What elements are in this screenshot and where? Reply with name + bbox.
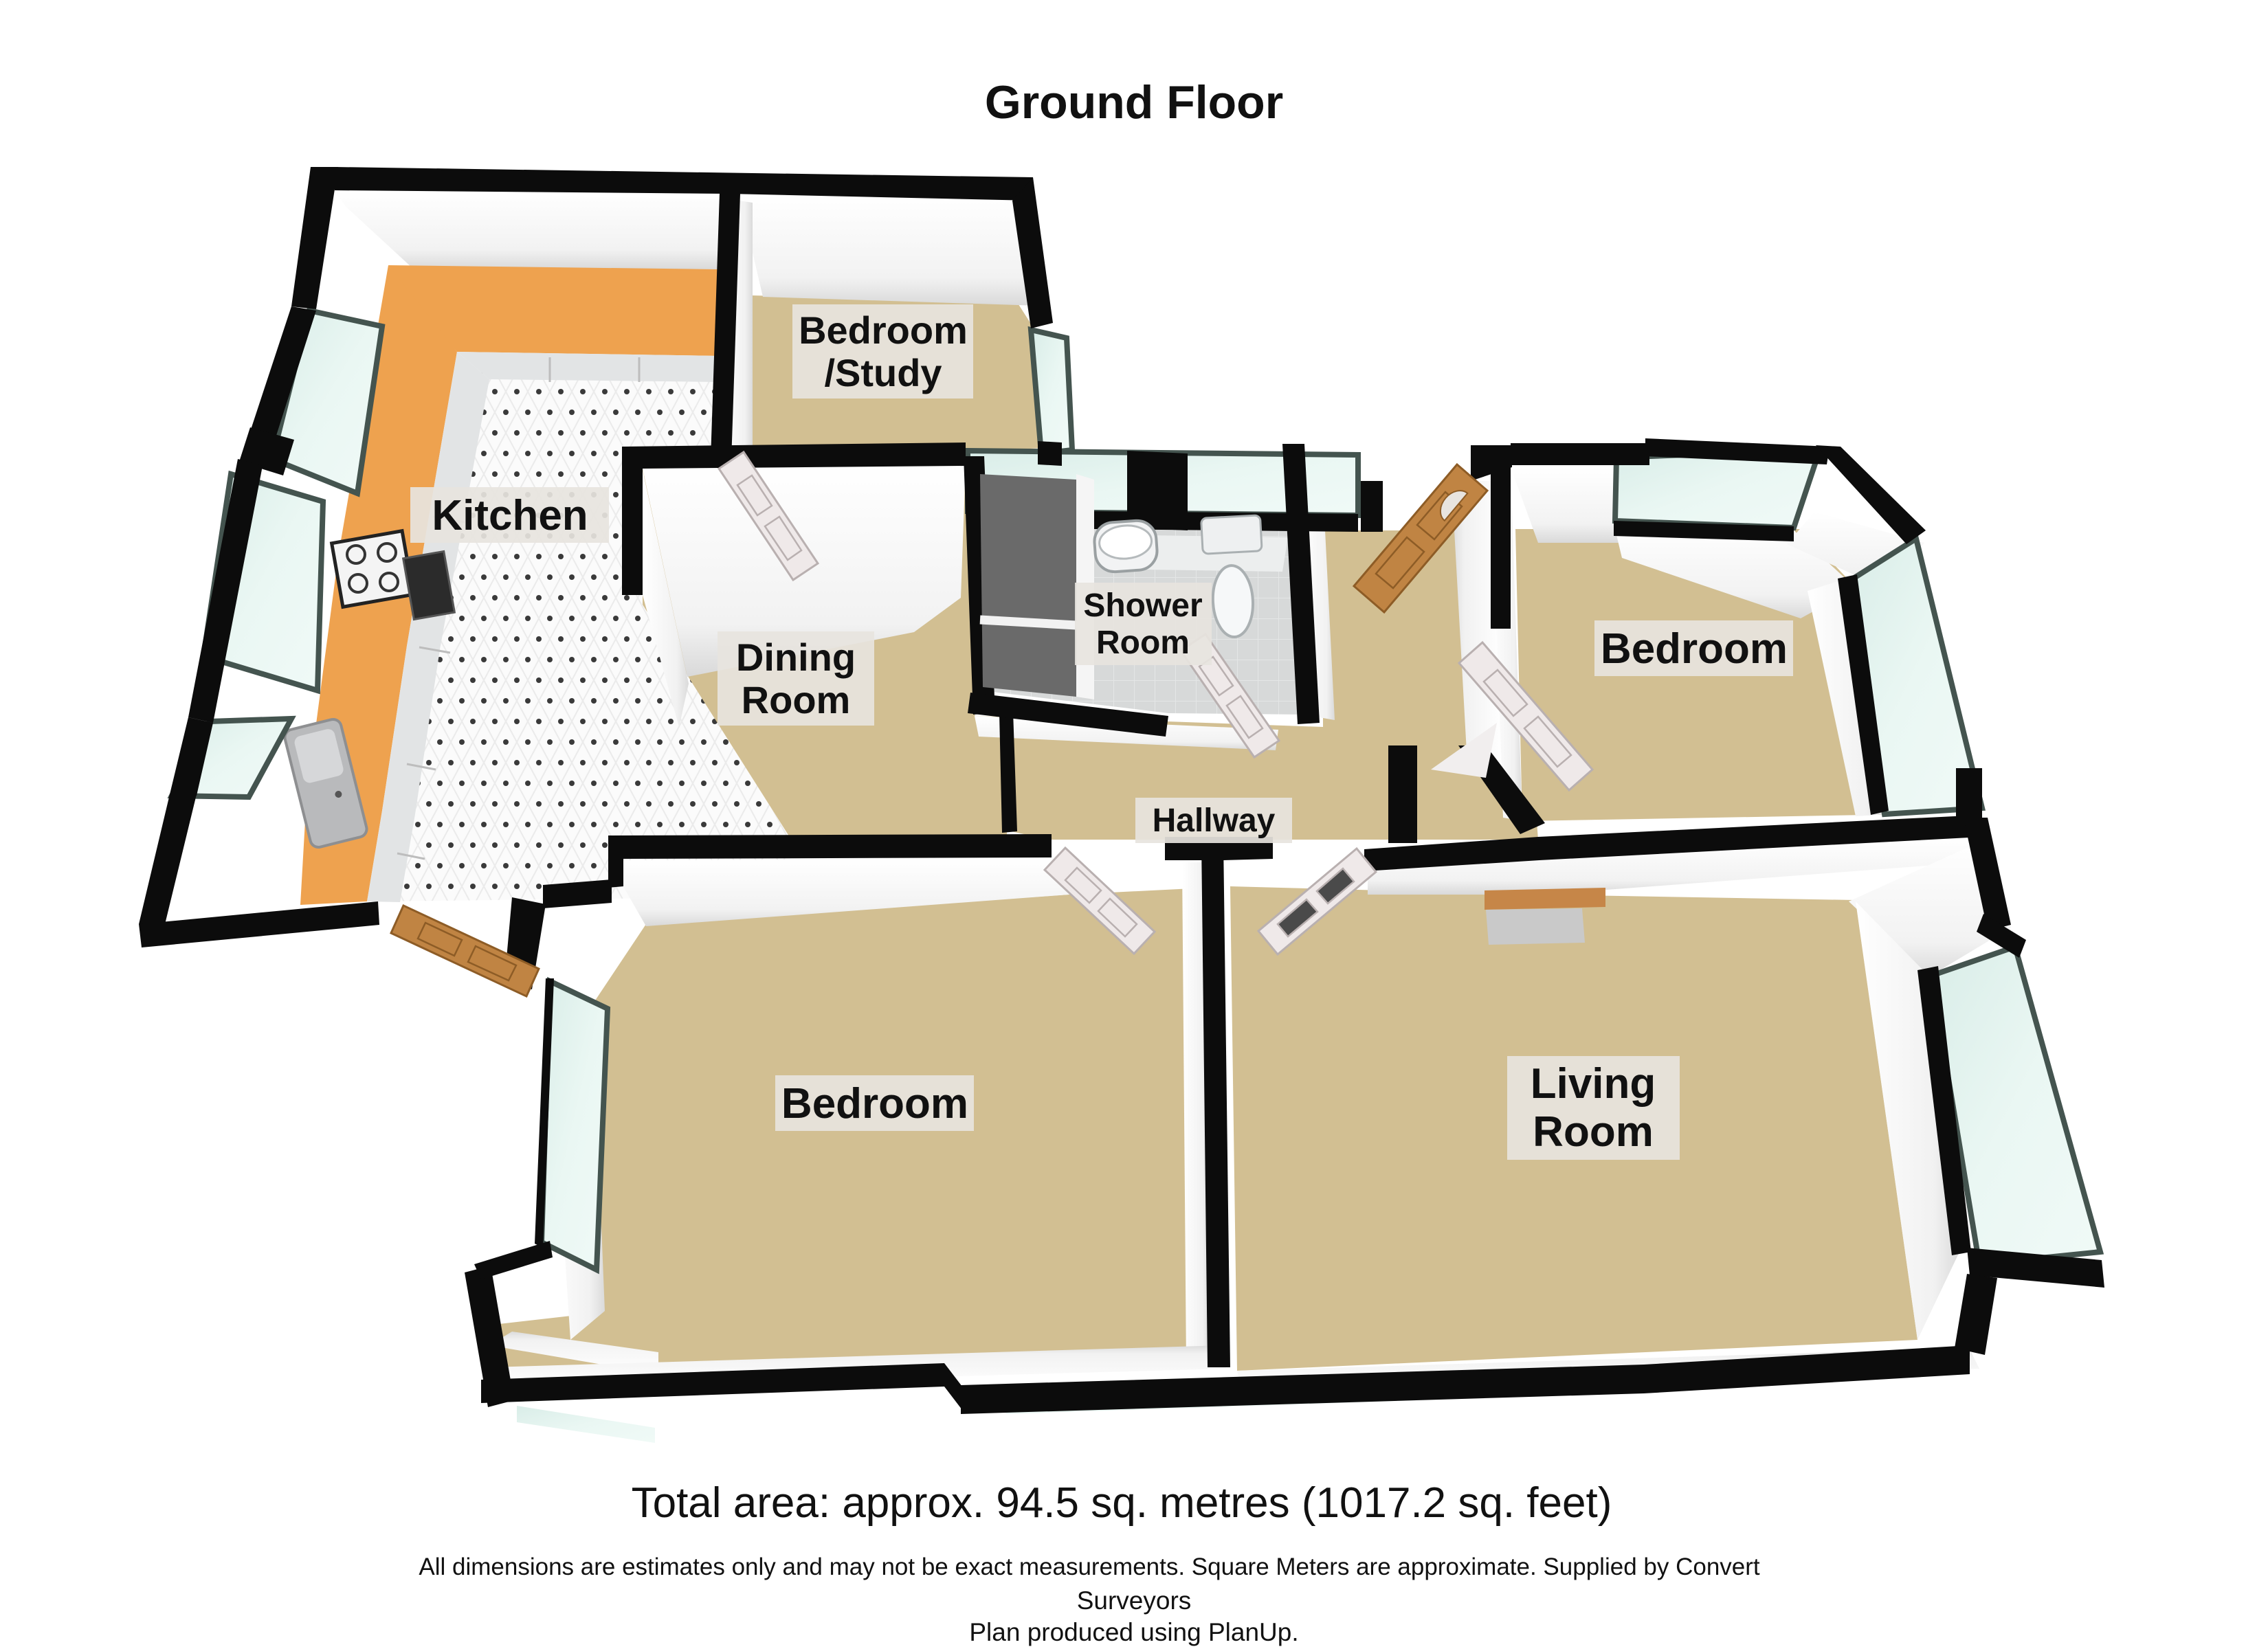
svg-text:/Study: /Study — [824, 351, 942, 394]
svg-text:Plan produced using PlanUp.: Plan produced using PlanUp. — [969, 1618, 1298, 1646]
svg-text:Shower: Shower — [1083, 587, 1202, 624]
svg-text:Total area: approx. 94.5 sq. m: Total area: approx. 94.5 sq. metres (101… — [632, 1479, 1612, 1527]
svg-text:Ground Floor: Ground Floor — [985, 76, 1283, 128]
svg-text:Room: Room — [1533, 1108, 1654, 1156]
svg-text:All dimensions are estimates o: All dimensions are estimates only and ma… — [419, 1553, 1760, 1580]
svg-text:Bedroom: Bedroom — [781, 1080, 968, 1128]
svg-text:Bedroom: Bedroom — [1601, 625, 1788, 673]
svg-text:Bedroom: Bedroom — [799, 309, 968, 352]
svg-text:Surveyors: Surveyors — [1077, 1586, 1192, 1615]
svg-text:Kitchen: Kitchen — [432, 492, 588, 539]
svg-text:Living: Living — [1531, 1060, 1656, 1108]
svg-text:Room: Room — [742, 678, 851, 721]
svg-text:Hallway: Hallway — [1153, 803, 1276, 839]
svg-text:Room: Room — [1096, 625, 1190, 661]
svg-text:Dining: Dining — [736, 636, 856, 679]
